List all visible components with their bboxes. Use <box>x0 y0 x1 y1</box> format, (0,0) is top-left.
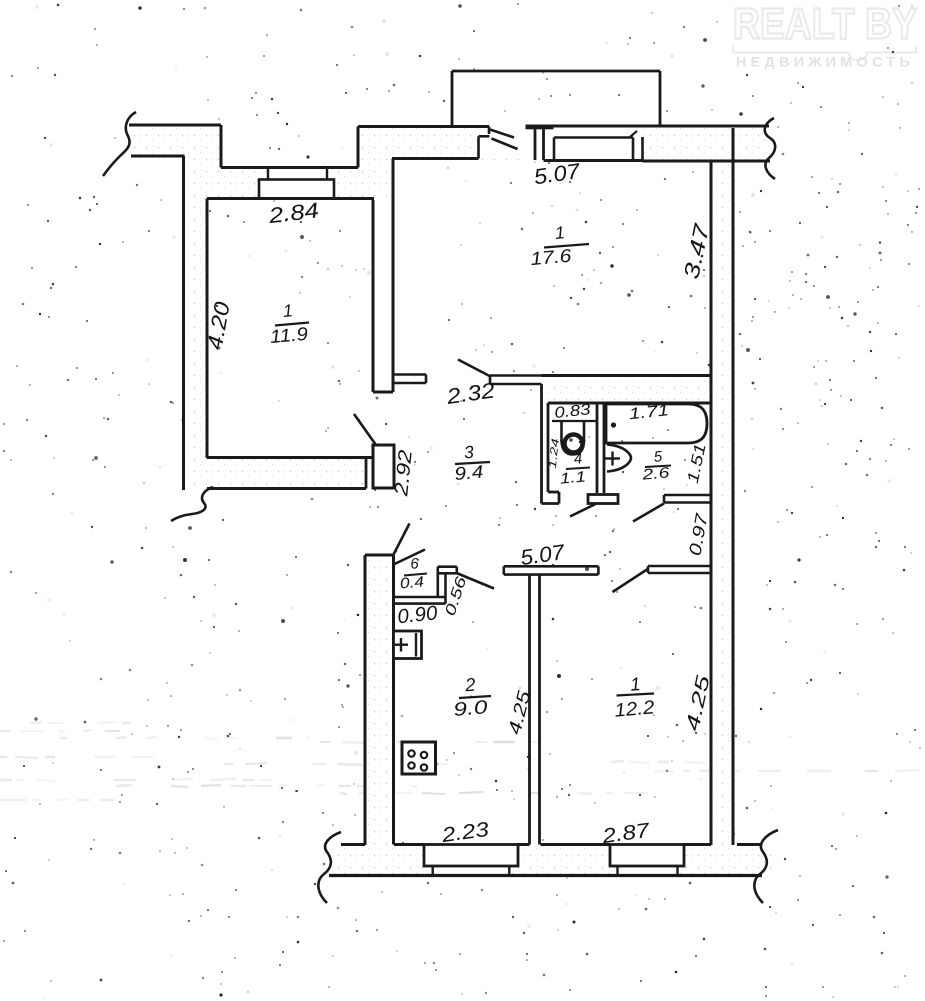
svg-text:17.6: 17.6 <box>530 245 573 270</box>
svg-text:4: 4 <box>573 450 583 468</box>
svg-text:1: 1 <box>282 300 293 321</box>
svg-text:1.1: 1.1 <box>559 468 586 487</box>
svg-text:9.4: 9.4 <box>454 462 485 484</box>
svg-text:11.9: 11.9 <box>269 323 309 347</box>
svg-text:9.0: 9.0 <box>453 697 489 721</box>
svg-text:0.4: 0.4 <box>399 573 424 592</box>
svg-text:0.90: 0.90 <box>396 602 438 628</box>
svg-text:REALT BY: REALT BY <box>733 0 917 49</box>
svg-text:НЕДВИЖИМОСТЬ: НЕДВИЖИМОСТЬ <box>736 55 914 70</box>
svg-text:1: 1 <box>629 673 641 695</box>
svg-text:3: 3 <box>463 442 475 463</box>
svg-text:2.6: 2.6 <box>640 464 671 483</box>
svg-text:12.2: 12.2 <box>614 697 656 721</box>
svg-text:1: 1 <box>554 222 565 243</box>
